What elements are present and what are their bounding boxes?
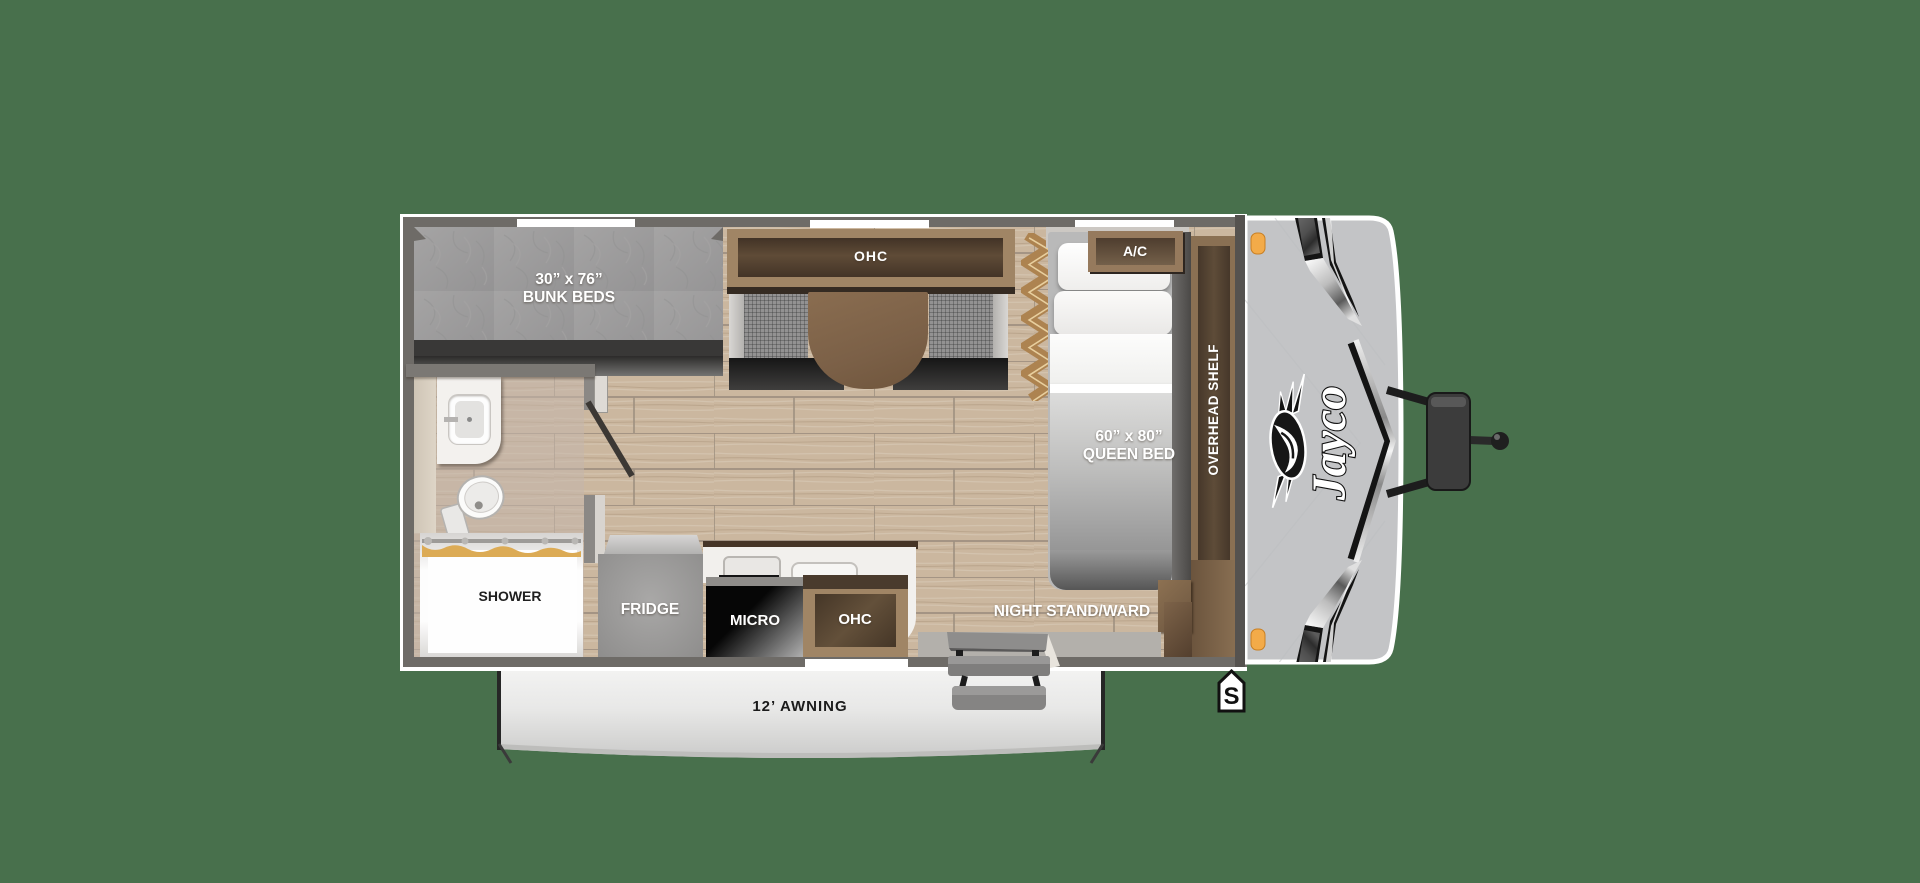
svg-text:S: S [1223, 683, 1239, 710]
svg-text:Jayco: Jayco [1303, 386, 1356, 502]
